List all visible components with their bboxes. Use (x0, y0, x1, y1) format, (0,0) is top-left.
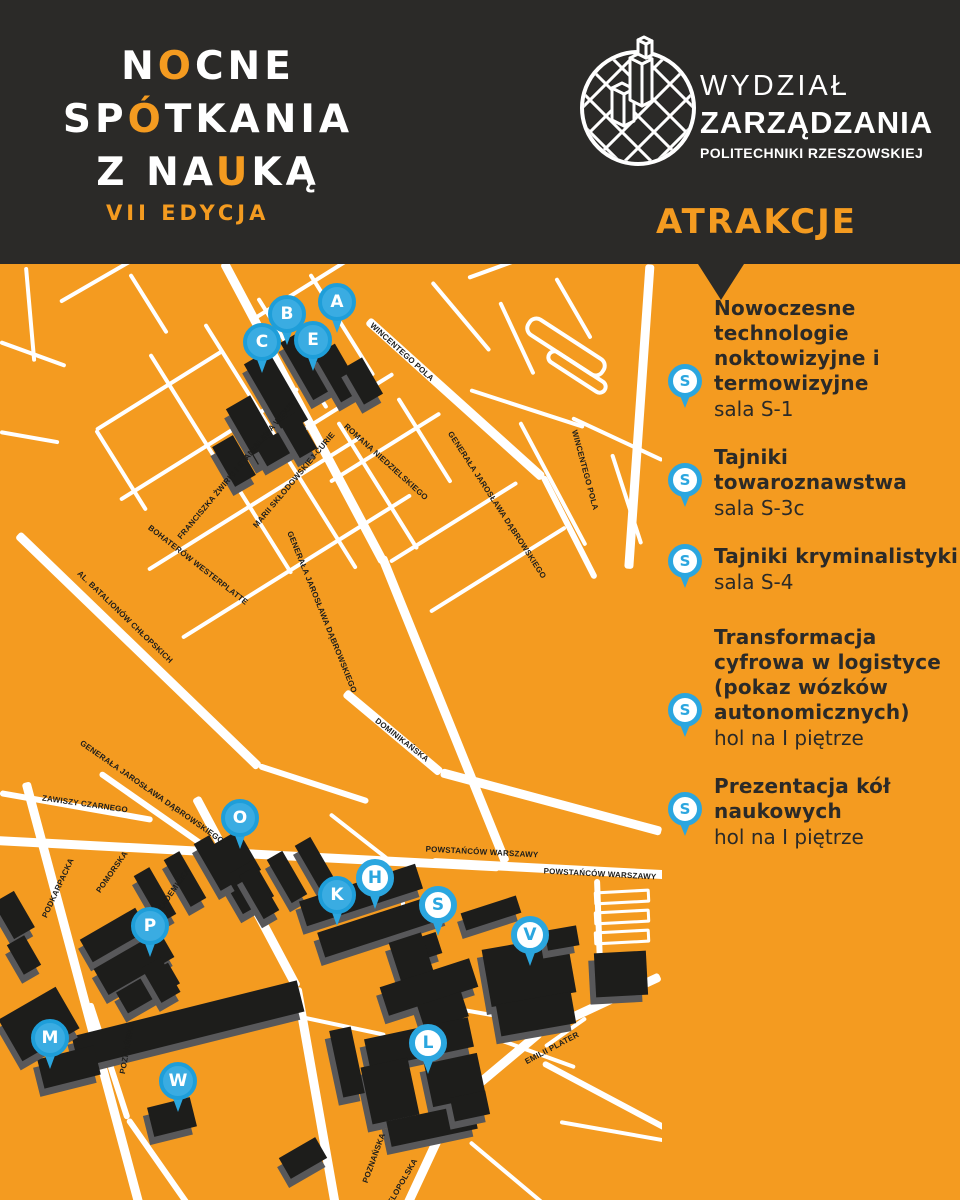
building (329, 1026, 365, 1097)
event-logo: NOCNE SPÓTKANIA Z NAUKĄ VII EDYCJA (62, 40, 354, 225)
event-logo-line1: NOCNE (62, 40, 354, 93)
attractions-panel: SNowoczesne technologie noktowizyjne i t… (668, 296, 960, 873)
street-label: WINCENTEGO POLA (570, 429, 600, 511)
map-outline (594, 889, 651, 906)
road (396, 397, 452, 484)
attraction-title: Tajniki kryminalistyki (714, 544, 960, 569)
attraction-location: hol na I piętrze (714, 824, 960, 850)
attraction-item: STransformacja cyfrowa w logistyce (poka… (668, 625, 960, 751)
road (148, 353, 215, 457)
header: NOCNE SPÓTKANIA Z NAUKĄ VII EDYCJA (0, 0, 960, 264)
attraction-location: sala S-4 (714, 569, 960, 595)
road (429, 526, 567, 614)
building (147, 1097, 197, 1137)
attraction-item: STajniki towaroznawstwasala S-3c (668, 445, 960, 521)
road (15, 531, 262, 770)
map-outline (594, 909, 651, 926)
attraction-location: sala S-1 (714, 396, 960, 422)
event-logo-line2: SPÓTKANIA (62, 93, 354, 146)
location-pin-icon: S (668, 544, 702, 578)
faculty-name: WYDZIAŁ ZARZĄDZANIA POLITECHNIKI RZESZOW… (700, 70, 933, 161)
attraction-title: Nowoczesne technologie noktowizyjne i te… (714, 296, 960, 396)
attraction-title: Tajniki towaroznawstwa (714, 445, 960, 495)
road (430, 281, 491, 353)
street-label: ROMANA NIEDZIELSKIEGO (342, 422, 430, 502)
building (7, 935, 41, 974)
road (0, 430, 59, 444)
attraction-item: SPrezentacja kół naukowychhol na I piętr… (668, 774, 960, 850)
attraction-item: STajniki kryminalistykisala S-4 (668, 544, 960, 602)
road (258, 763, 369, 804)
faculty-name-line1: WYDZIAŁ (700, 70, 933, 103)
building (360, 1058, 419, 1125)
road (498, 301, 535, 375)
faculty-name-line3: POLITECHNIKI RZESZOWSKIEJ (700, 145, 933, 161)
street-label: POMORSKA (94, 849, 129, 894)
street-label: GENERAŁA JAROSŁAWA DĄBROWSKIEGO (446, 430, 548, 581)
road (95, 349, 224, 432)
attractions-title: ATRAKCJE (656, 202, 857, 242)
faculty-logo-icon (572, 34, 704, 172)
street-label: ZAWISZY CZARNEGO (41, 794, 128, 815)
location-pin-icon: S (668, 792, 702, 826)
street-label: WINCENTEGO POLA (368, 321, 435, 383)
attraction-item: SNowoczesne technologie noktowizyjne i t… (668, 296, 960, 422)
street-label: POWSTAŃCÓW WARSZAWY (425, 845, 538, 860)
attraction-location: hol na I piętrze (714, 725, 960, 751)
map-outline (594, 929, 651, 946)
building (545, 925, 580, 950)
street-label: AL. BATALIONÓW CHŁOPSKICH (75, 569, 174, 665)
map-canvas: ABCEOPKHSVMWLWINCENTEGO POLAWINCENTEGO P… (0, 264, 662, 1200)
edition-label: VII EDYCJA (62, 201, 354, 225)
location-pin-icon: S (668, 463, 702, 497)
moon-glyph: O (158, 44, 195, 89)
attraction-title: Prezentacja kół naukowych (714, 774, 960, 824)
road (469, 1140, 571, 1200)
street-label: GENERAŁA JAROSŁAWA DĄBROWSKIEGO (78, 739, 225, 846)
road (467, 264, 581, 280)
location-pin-icon: S (668, 693, 702, 727)
event-logo-line3: Z NAUKĄ (62, 146, 354, 199)
road (24, 267, 36, 362)
faculty-name-line2: ZARZĄDZANIA (700, 105, 933, 141)
campus-map: ABCEOPKHSVMWLWINCENTEGO POLAWINCENTEGO P… (0, 264, 662, 1200)
road (181, 493, 412, 639)
road (542, 1060, 662, 1136)
street-label: POZNAŃSKA (361, 1132, 387, 1184)
road (560, 1120, 662, 1143)
flask-glyph: U (216, 150, 252, 195)
road (624, 264, 654, 569)
road (440, 768, 662, 836)
road (128, 273, 168, 334)
attraction-list: SNowoczesne technologie noktowizyjne i t… (668, 296, 960, 850)
street-label: DOMINIKAŃSKA (373, 716, 430, 763)
building (72, 980, 305, 1067)
building (594, 951, 648, 998)
attractions-pointer-icon (698, 264, 744, 300)
flask-glyph: Ó (128, 97, 165, 142)
building (0, 891, 35, 939)
attraction-title: Transformacja cyfrowa w logistyce (pokaz… (714, 625, 960, 725)
attraction-location: sala S-3c (714, 495, 960, 521)
location-pin-icon: S (668, 364, 702, 398)
